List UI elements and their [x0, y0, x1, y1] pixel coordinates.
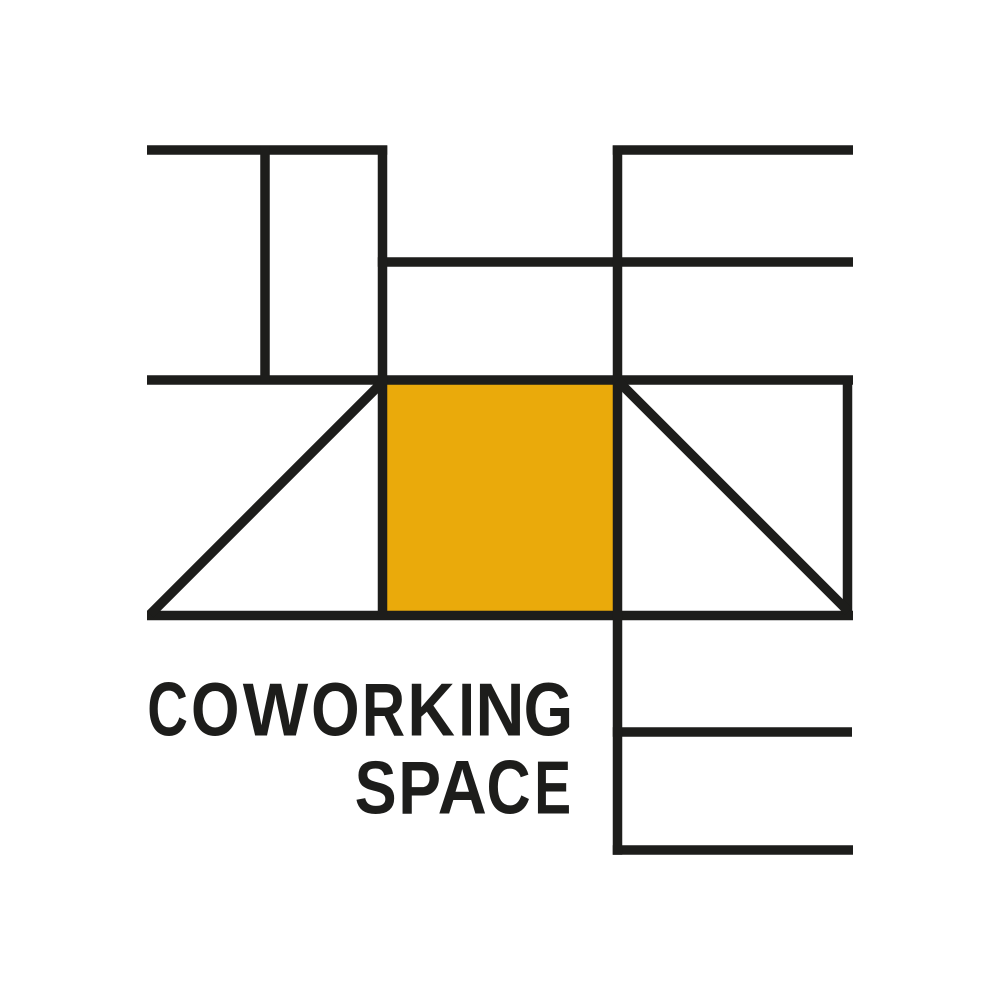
svg-text:O: O: [191, 667, 239, 752]
svg-text:G: G: [524, 667, 573, 751]
svg-text:O: O: [311, 667, 359, 752]
svg-text:N: N: [475, 668, 524, 752]
svg-text:I: I: [458, 667, 475, 752]
svg-text:S: S: [355, 745, 397, 830]
svg-text:P: P: [398, 746, 441, 830]
svg-text:R: R: [362, 668, 405, 752]
svg-text:K: K: [407, 668, 455, 752]
svg-text:C: C: [147, 669, 188, 753]
svg-text:A: A: [438, 746, 487, 830]
svg-text:C: C: [486, 745, 530, 830]
svg-text:E: E: [534, 746, 571, 830]
svg-text:W: W: [243, 668, 309, 752]
